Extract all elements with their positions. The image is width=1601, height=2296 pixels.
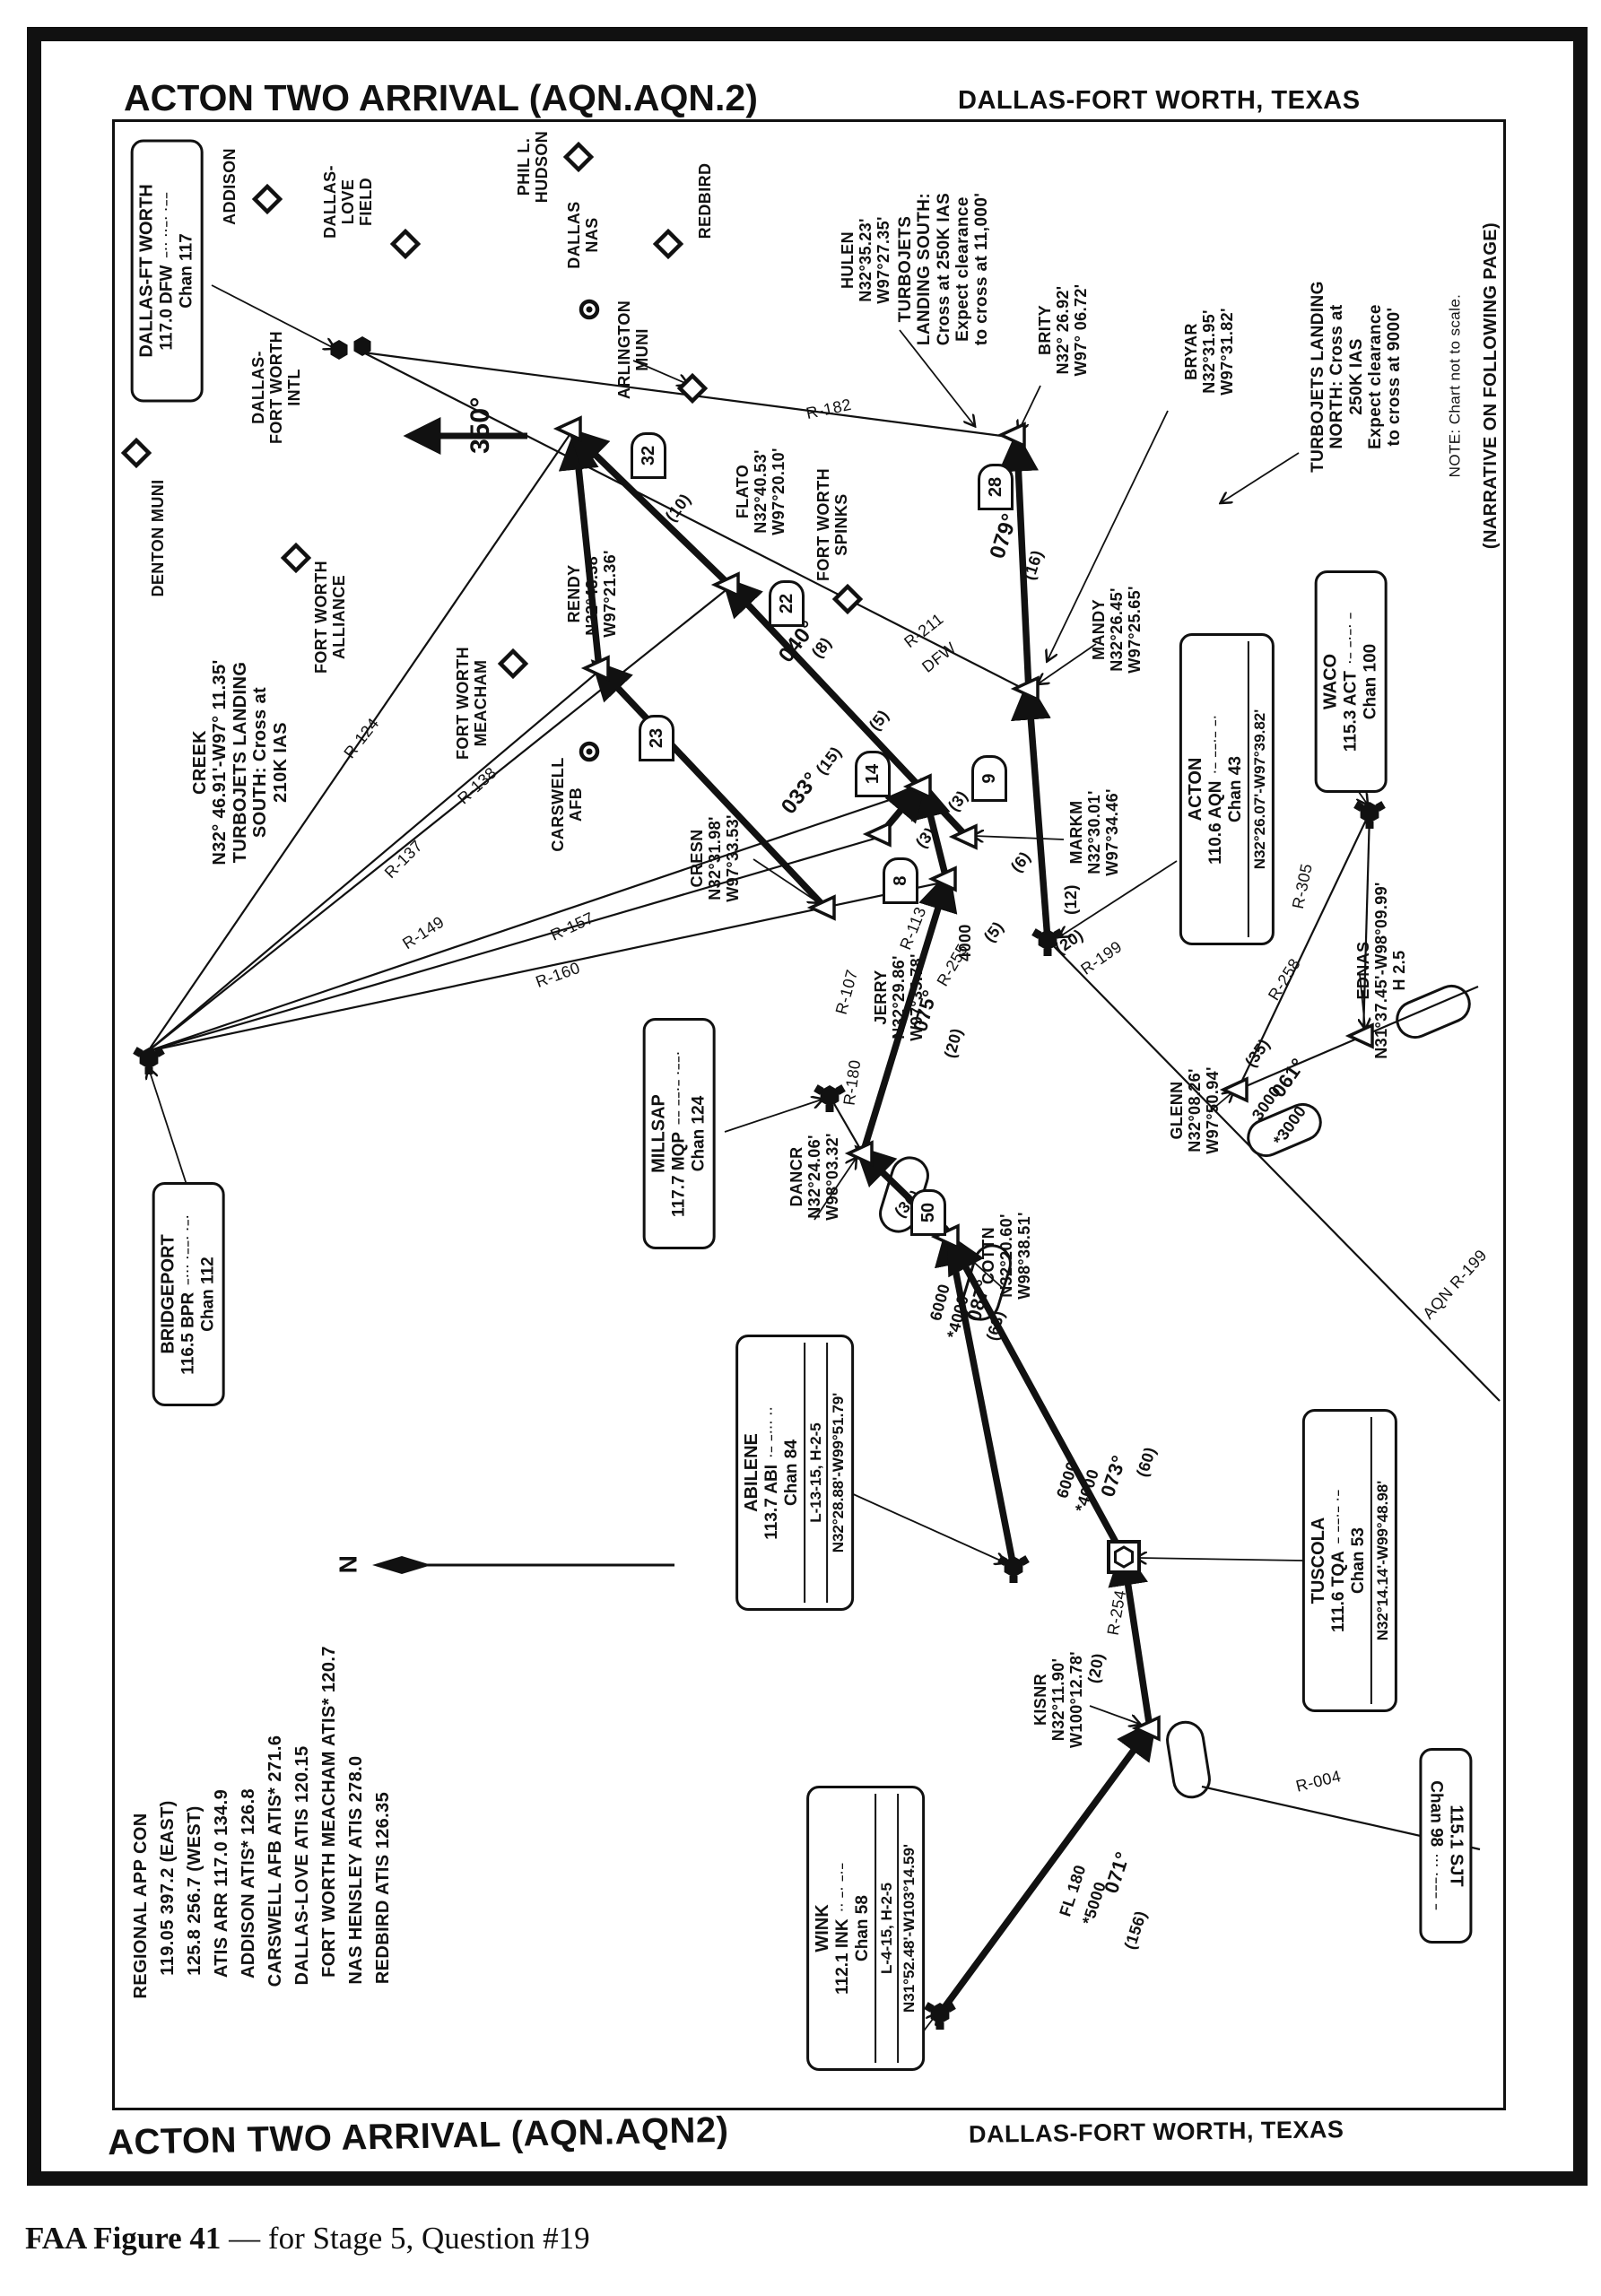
tuscola-navaid-box-morse-code: – ––·– ·– bbox=[1332, 1489, 1345, 1544]
millsap-navaid-box-line-0: MILLSAP bbox=[649, 1094, 670, 1173]
label-glenn-n32-08-26-w97-50-94: GLENN N32°08.26' W97°50.94' bbox=[1168, 1066, 1222, 1154]
millsap-navaid-box-morse-code: –– ––·– ·––· bbox=[673, 1050, 686, 1125]
abilene-navaid-box-morse-code: ·– –··· ·· bbox=[766, 1405, 779, 1457]
label-narrative-on-following-page: (NARRATIVE ON FOLLOWING PAGE) bbox=[1481, 222, 1501, 549]
label-dallas-fort-worth-intl: DALLAS- FORT WORTH INTL bbox=[249, 331, 303, 444]
label-note-chart-not-to-scale: NOTE: Chart not to scale. bbox=[1446, 294, 1463, 478]
label-350: 350° bbox=[466, 396, 496, 454]
tuscola-navaid-box-line-2: Chan 53 bbox=[1349, 1527, 1369, 1594]
wink-navaid-box-line-1: 112.1 INK bbox=[833, 1918, 853, 1995]
label-hulen-n32-35-23-w97-27-35: HULEN N32°35.23' W97°27.35' bbox=[839, 216, 892, 304]
san-angelo-navaid-box-morse-code: ··· ·––– – bbox=[1429, 1854, 1442, 1910]
label-cresn-n32-31-98-w97-33-53: CRESN N32°31.98' W97°33.53' bbox=[688, 814, 742, 902]
label-markm-n32-30-01-w97-34-46: MARKM N32°30.01' W97°34.46' bbox=[1067, 788, 1121, 876]
label-turbojets-landing-south-cros: TURBOJETS LANDING SOUTH: Cross at 250K I… bbox=[896, 193, 991, 346]
dme-box-8: 8 bbox=[883, 857, 918, 904]
wink-navaid-box-line-2: Chan 58 bbox=[853, 1895, 873, 1961]
dallas-ft-worth-navaid-box: DALLAS-FT WORTH117.0 DFW–·· ··–· ·––Chan… bbox=[131, 140, 204, 403]
abilene-navaid-box-line-2: Chan 84 bbox=[782, 1439, 802, 1506]
label-arlington-muni: ARLINGTON MUNI bbox=[615, 300, 651, 399]
label-brity-n32-26-92-w97-06-72: BRITY N32° 26.92' W97° 06.72' bbox=[1036, 284, 1090, 377]
label-119-05-397-2-east: 119.05 397.2 (EAST) bbox=[158, 1800, 178, 1976]
bridgeport-navaid-box-line-1: 116.5 BPR bbox=[179, 1292, 199, 1375]
waco-navaid-box-morse-code: ·– –·–· – bbox=[1344, 612, 1358, 664]
label-phil-l-hudson: PHIL L. HUDSON bbox=[515, 131, 551, 203]
label-dancr-n32-24-06-w98-03-32: DANCR N32°24.06' W98°03.32' bbox=[787, 1133, 841, 1221]
dme-box-50: 50 bbox=[910, 1189, 946, 1236]
label-redbird: REDBIRD bbox=[696, 163, 714, 239]
waco-navaid-box-line-2: Chan 100 bbox=[1362, 644, 1381, 719]
label-carswell-afb: CARSWELL AFB bbox=[549, 757, 585, 851]
tuscola-navaid-box-line-0: TUSCOLA bbox=[1309, 1518, 1329, 1605]
label-flato-n32-40-53-w97-20-10: FLATO N32°40.53' W97°20.10' bbox=[734, 448, 787, 535]
bridgeport-navaid-box-morse-code: –··· ·––· ·–· bbox=[182, 1213, 196, 1284]
dme-box-14: 14 bbox=[855, 751, 891, 797]
acton-navaid-box: ACTON110.6 AQN·– ––·– –·Chan 43N32°26.07… bbox=[1179, 633, 1275, 945]
chart-location-bottom: DALLAS-FORT WORTH, TEXAS bbox=[969, 2116, 1344, 2149]
dallas-ft-worth-navaid-box-line-0: DALLAS-FT WORTH bbox=[137, 184, 158, 357]
acton-navaid-box-line-0: ACTON bbox=[1186, 758, 1206, 822]
label-turbojets-landing-north-cros: TURBOJETS LANDING NORTH: Cross at 250K I… bbox=[1309, 281, 1404, 473]
tuscola-navaid-box-sub-0: N32°14.14'-W99°48.98' bbox=[1370, 1417, 1392, 1704]
san-angelo-navaid-box-line-1: Chan 98 bbox=[1426, 1780, 1446, 1847]
acton-navaid-box-line-1: 110.6 AQN bbox=[1206, 781, 1226, 865]
dallas-ft-worth-navaid-box-line-1: 117.0 DFW bbox=[158, 265, 178, 351]
label-mandy-n32-26-45-w97-25-65: MANDY N32°26.45' W97°25.65' bbox=[1090, 586, 1144, 674]
label-rendy-n32-43-38-w97-21-36: RENDY N32°43.38' W97°21.36' bbox=[565, 550, 619, 638]
wink-navaid-box-morse-code: ·· –· –·– bbox=[837, 1862, 850, 1911]
tuscola-navaid-box: TUSCOLA111.6 TQA– ––·– ·–Chan 53N32°14.1… bbox=[1302, 1409, 1397, 1712]
figure-caption-number: FAA Figure 41 bbox=[25, 2221, 221, 2256]
acton-navaid-box-sub-0: N32°26.07'-W97°39.82' bbox=[1248, 641, 1269, 937]
label-kisnr-n32-11-90-w100-12-78: KISNR N32°11.90' W100°12.78' bbox=[1031, 1651, 1085, 1748]
chart-page: ACTON TWO ARRIVAL (AQN.AQN.2) DALLAS-FOR… bbox=[0, 0, 1601, 2296]
dme-box-32: 32 bbox=[631, 432, 666, 479]
label-addison: ADDISON bbox=[221, 148, 239, 225]
label-125-8-256-7-west: 125.8 256.7 (WEST) bbox=[185, 1805, 204, 1976]
chart-title-top: ACTON TWO ARRIVAL (AQN.AQN.2) bbox=[124, 77, 758, 119]
wink-navaid-box-line-0: WINK bbox=[813, 1904, 833, 1952]
abilene-navaid-box: ABILENE113.7 ABI·– –··· ··Chan 84L-13-15… bbox=[735, 1335, 854, 1611]
dme-box-23: 23 bbox=[639, 715, 674, 761]
dme-box-9: 9 bbox=[971, 755, 1007, 802]
label-atis-arr-117-0-134-9: ATIS ARR 117.0 134.9 bbox=[212, 1789, 231, 1978]
dme-box-28: 28 bbox=[978, 464, 1014, 510]
waco-navaid-box-line-1: 115.3 ACT bbox=[1342, 671, 1362, 752]
dallas-ft-worth-navaid-box-morse-code: –·· ··–· ·–– bbox=[161, 191, 174, 257]
san-angelo-navaid-box: 115.1 SJTChan 98··· ·––– – bbox=[1420, 1748, 1473, 1944]
san-angelo-navaid-box-line-0: 115.1 SJT bbox=[1445, 1805, 1466, 1886]
wink-navaid-box-sub-1: N31°52.48'-W103°14.59' bbox=[897, 1794, 918, 2063]
label-fort-worth-meacham: FORT WORTH MEACHAM bbox=[454, 647, 490, 760]
figure-caption: FAA Figure 41 — for Stage 5, Question #1… bbox=[25, 2221, 590, 2257]
bridgeport-navaid-box-line-2: Chan 112 bbox=[199, 1257, 219, 1331]
abilene-navaid-box-sub-0: L-13-15, H-2-5 bbox=[804, 1343, 825, 1603]
label-n: N bbox=[334, 1555, 361, 1574]
label-creek-n32-46-91-w97-11-35-tu: CREEK N32° 46.91'-W97° 11.35' TURBOJETS … bbox=[190, 659, 291, 865]
wink-navaid-box-sub-0: L-4-15, H-2-5 bbox=[874, 1794, 896, 2063]
dme-box-22: 22 bbox=[769, 580, 805, 627]
label-addison-atis-126-8: ADDISON ATIS* 126.8 bbox=[239, 1788, 258, 1979]
label-dallas-love-atis-120-15: DALLAS-LOVE ATIS 120.15 bbox=[292, 1745, 312, 1985]
figure-caption-text: — for Stage 5, Question #19 bbox=[221, 2221, 589, 2256]
label-fort-worth-meacham-atis-120-: FORT WORTH MEACHAM ATIS* 120.7 bbox=[319, 1646, 339, 1978]
label-carswell-afb-atis-271-6: CARSWELL AFB ATIS* 271.6 bbox=[265, 1735, 285, 1987]
label-regional-app-con: REGIONAL APP CON bbox=[131, 1813, 151, 1998]
label-denton-muni: DENTON MUNI bbox=[149, 479, 167, 596]
acton-navaid-box-line-2: Chan 43 bbox=[1226, 756, 1246, 822]
waco-navaid-box: WACO115.3 ACT·– –·–· –Chan 100 bbox=[1315, 570, 1388, 793]
wink-navaid-box: WINK112.1 INK·· –· –·–Chan 58L-4-15, H-2… bbox=[806, 1786, 925, 2071]
label-dallas-love-field: DALLAS- LOVE FIELD bbox=[321, 165, 375, 239]
label-fort-worth-alliance: FORT WORTH ALLIANCE bbox=[312, 561, 348, 674]
abilene-navaid-box-sub-1: N32°28.88'-W99°51.79' bbox=[826, 1343, 848, 1603]
label-bryar-n32-31-95-w97-31-82: BRYAR N32°31.95' W97°31.82' bbox=[1182, 308, 1236, 396]
tuscola-navaid-box-line-1: 111.6 TQA bbox=[1329, 1551, 1349, 1632]
bridgeport-navaid-box: BRIDGEPORT116.5 BPR–··· ·––· ·–·Chan 112 bbox=[152, 1182, 225, 1406]
abilene-navaid-box-line-0: ABILENE bbox=[742, 1433, 762, 1512]
millsap-navaid-box-line-2: Chan 124 bbox=[690, 1096, 709, 1171]
label-ednas-n31-37-45-w98-09-99-h-: EDNAS N31°37.45'-W98°09.99' H 2.5 bbox=[1354, 882, 1408, 1058]
label-12: (12) bbox=[1062, 884, 1080, 915]
acton-navaid-box-morse-code: ·– ––·– –· bbox=[1209, 714, 1223, 773]
dallas-ft-worth-navaid-box-line-2: Chan 117 bbox=[178, 233, 197, 308]
label-fort-worth-spinks: FORT WORTH SPINKS bbox=[814, 468, 850, 581]
bridgeport-navaid-box-line-0: BRIDGEPORT bbox=[159, 1234, 179, 1353]
chart-location-top: DALLAS-FORT WORTH, TEXAS bbox=[958, 86, 1361, 116]
millsap-navaid-box: MILLSAP117.7 MQP–– ––·– ·––·Chan 124 bbox=[643, 1018, 716, 1249]
waco-navaid-box-line-0: WACO bbox=[1321, 654, 1342, 709]
abilene-navaid-box-line-1: 113.7 ABI bbox=[762, 1465, 782, 1540]
label-nas-hensley-atis-278-0: NAS HENSLEY ATIS 278.0 bbox=[346, 1755, 366, 1984]
label-redbird-atis-126-35: REDBIRD ATIS 126.35 bbox=[373, 1792, 393, 1984]
millsap-navaid-box-line-1: 117.7 MQP bbox=[670, 1132, 690, 1217]
label-dallas-nas: DALLAS NAS bbox=[565, 201, 601, 268]
